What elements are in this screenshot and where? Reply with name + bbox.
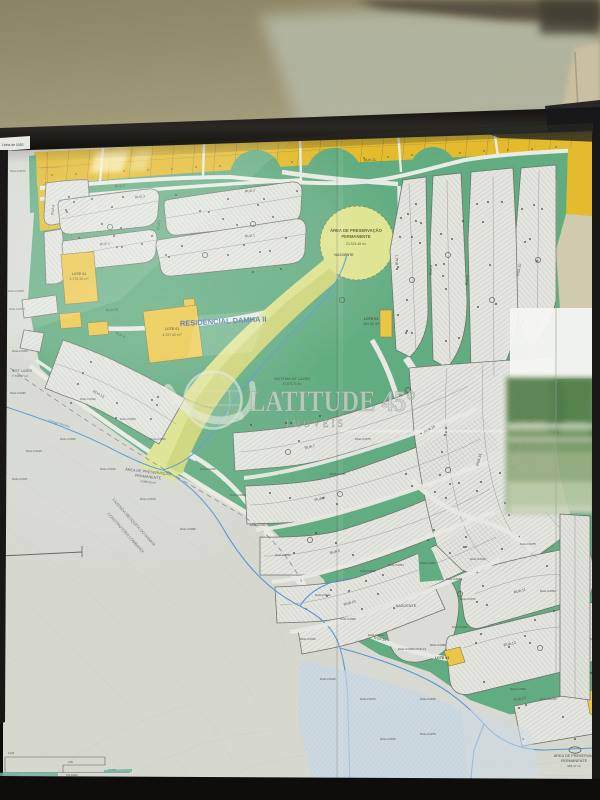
svg-text:Linha de 0052: Linha de 0052 <box>2 143 24 147</box>
